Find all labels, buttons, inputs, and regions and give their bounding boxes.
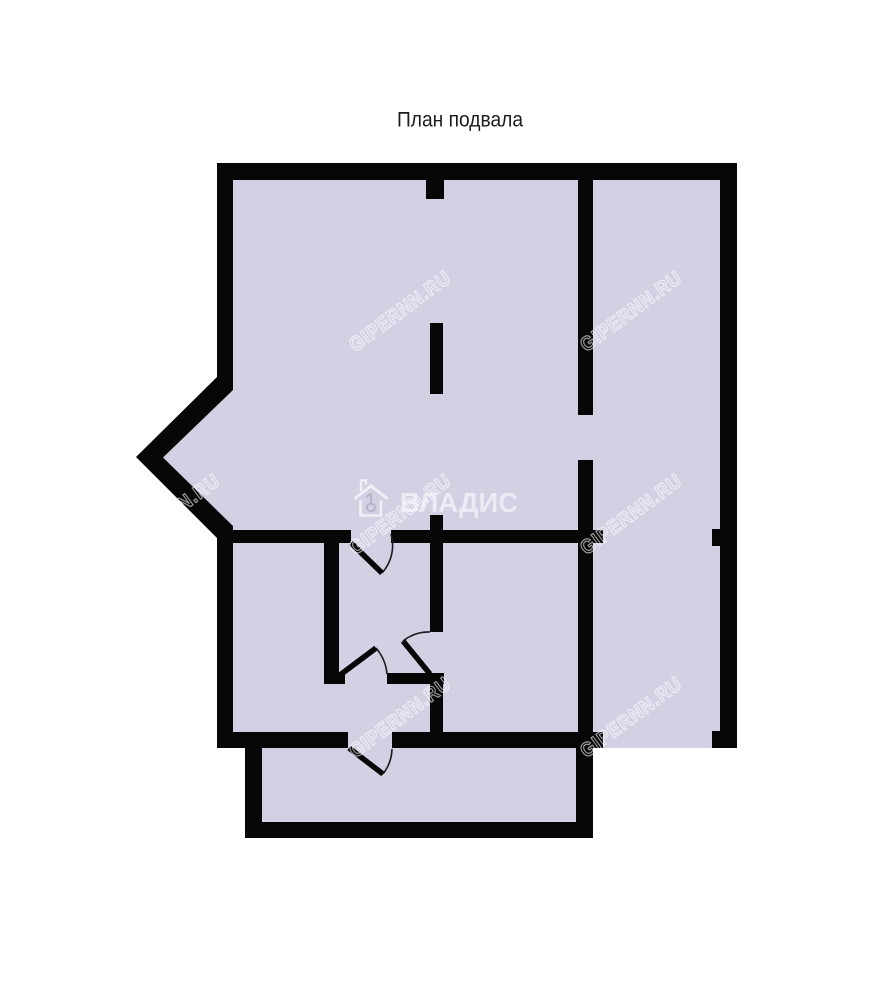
svg-text:План подвала: План подвала <box>397 109 523 132</box>
svg-text:ВЛАДИС: ВЛАДИС <box>400 487 518 518</box>
